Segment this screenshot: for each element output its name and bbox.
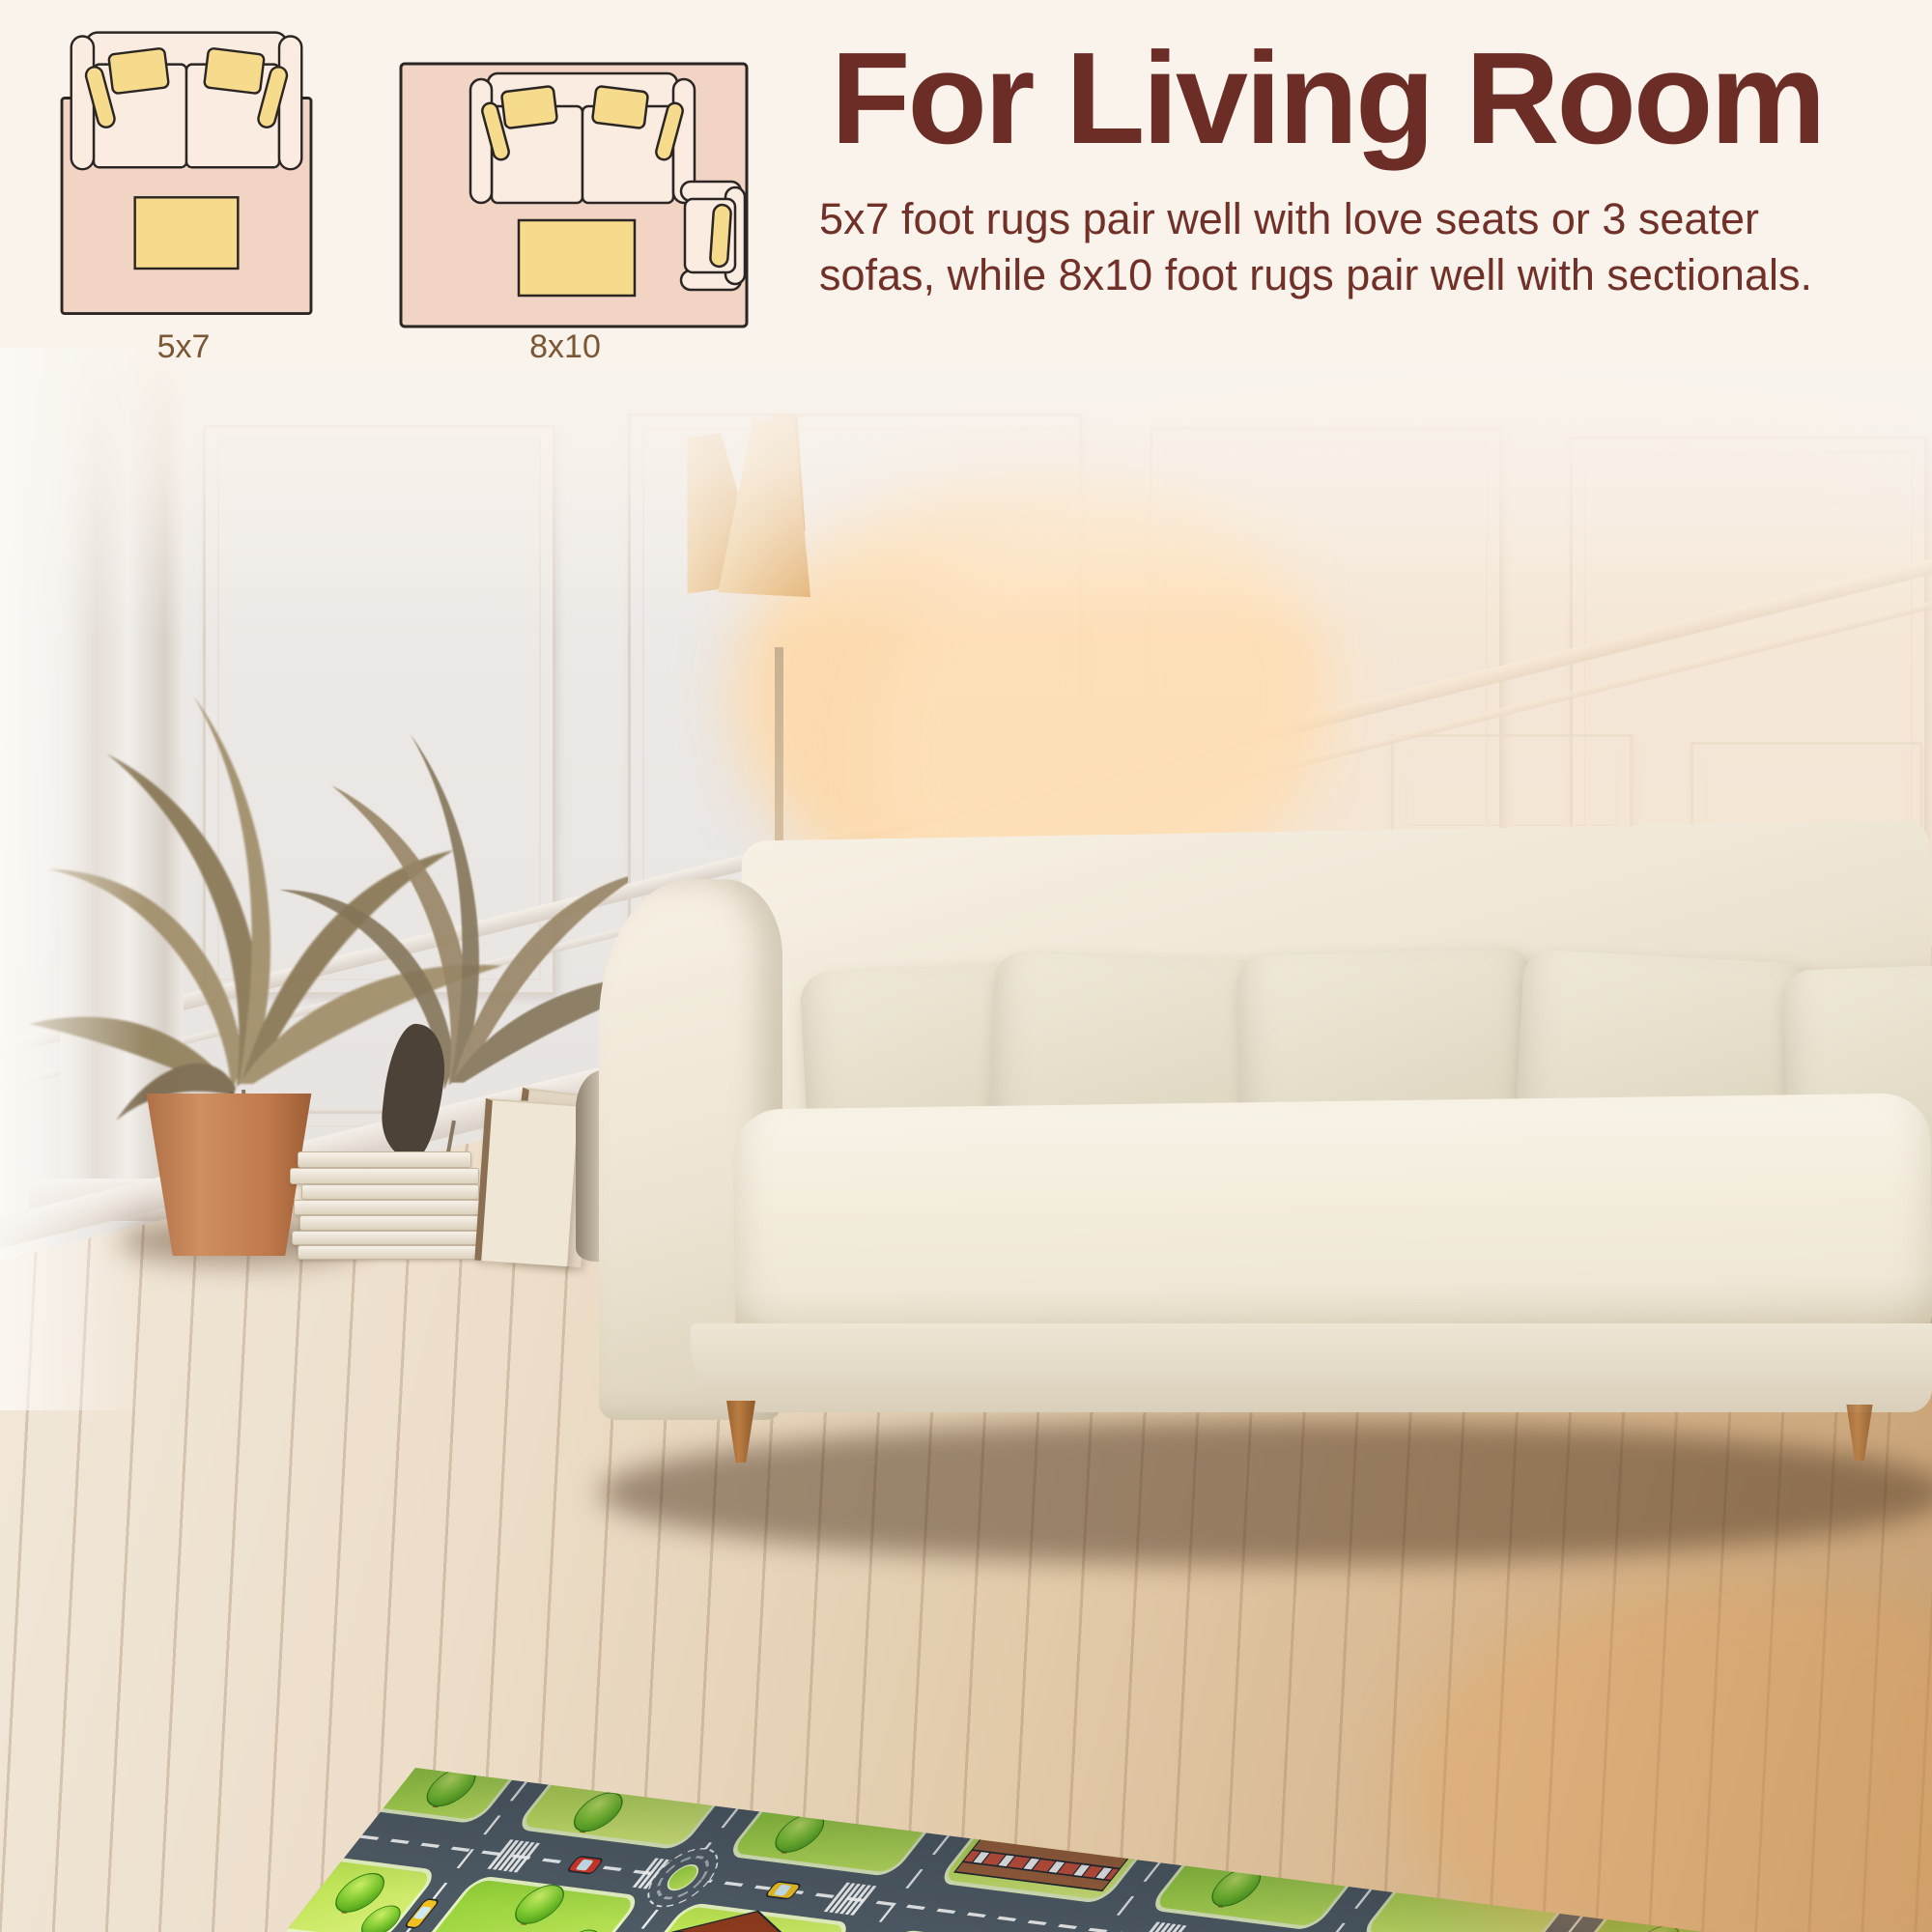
photo-left-fade [0,348,145,1410]
header: 5x7 [0,0,1932,386]
description-line-2: sofas, while 8x10 foot rugs pair well wi… [819,247,1812,303]
living-room-photo [0,348,1932,1932]
book [301,1184,479,1200]
sofa-base [691,1323,1932,1412]
description: 5x7 foot rugs pair well with love seats … [819,191,1930,247]
rug-size-diagram-8x10 [394,46,753,336]
book [294,1200,485,1215]
leaning-canvas [474,1098,578,1266]
page-title: For Living Room [831,27,1932,171]
book [298,1245,483,1260]
product-marketing-image: 5x7 [0,0,1932,1932]
sofa-leg [1840,1405,1879,1461]
book [299,1215,483,1231]
size-label-8x10: 8x10 [469,328,662,366]
photo-top-fade [0,348,1932,638]
description-line-1: 5x7 foot rugs pair well with love seats … [819,191,1759,247]
rug-size-diagram-5x7 [46,21,327,330]
book-stack [290,1151,488,1260]
book [298,1151,471,1168]
book [290,1168,479,1184]
sofa [599,821,1932,1517]
size-label-5x7: 5x7 [87,328,280,366]
book [292,1231,485,1245]
